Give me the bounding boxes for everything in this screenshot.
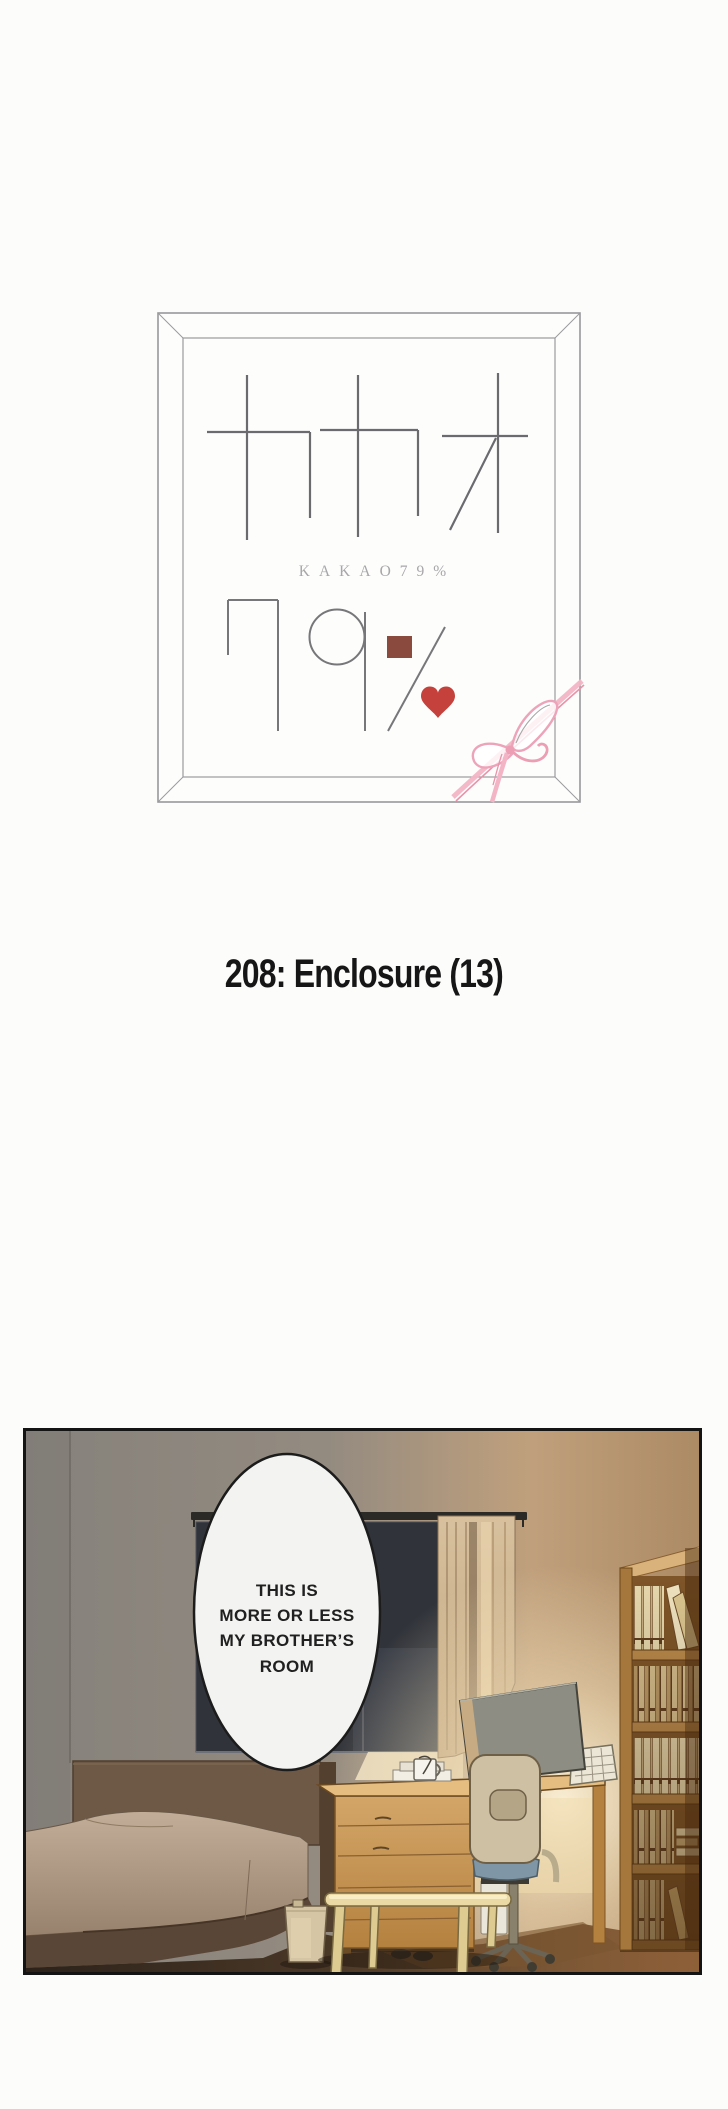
comic-panel: THIS IS MORE OR LESS MY BROTHER’S ROOM [23, 1428, 702, 1975]
speech-line: ROOM [260, 1657, 314, 1676]
webtoon-page: KAKAO79% 208: Enclosure (13) [0, 0, 728, 2109]
chocolate-square-icon [387, 636, 412, 658]
chapter-title: 208: Enclosure (13) [0, 952, 728, 997]
chair-post [509, 1884, 518, 1944]
picture-frame [158, 313, 580, 802]
logo-subtitle: KAKAO79% [299, 563, 455, 580]
speech-bubble: THIS IS MORE OR LESS MY BROTHER’S ROOM [194, 1454, 380, 1770]
chapter-title-text: 208: Enclosure (13) [225, 952, 503, 997]
bench-top [325, 1893, 511, 1906]
bookshelf [620, 1546, 702, 1952]
speech-line: MORE OR LESS [219, 1606, 354, 1625]
series-logo-frame: KAKAO79% [150, 305, 590, 805]
speech-line: THIS IS [256, 1581, 318, 1600]
speech-line: MY BROTHER’S [220, 1631, 355, 1650]
